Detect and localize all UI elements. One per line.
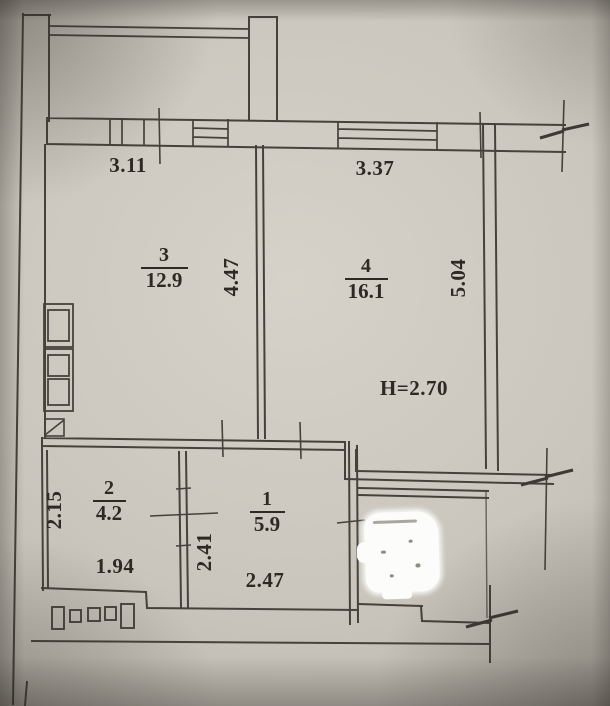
dim-room4-width: 3.37	[345, 157, 405, 179]
blob-mark	[390, 574, 394, 577]
bathroom-right-wall	[486, 492, 487, 618]
room3-label: 3 12.9	[132, 245, 196, 291]
balcony-railing-icon	[49, 26, 249, 38]
wardrobe-icon	[52, 604, 134, 629]
dim-room3-depth: 4.47	[220, 245, 242, 309]
floorplan-drawing	[0, 0, 610, 706]
blob-mark	[373, 519, 417, 524]
vent-icon	[45, 419, 64, 436]
censored-area-blob	[382, 585, 412, 599]
blob-mark	[409, 540, 413, 543]
room4-area: 16.1	[334, 281, 398, 302]
room3-number: 3	[132, 245, 196, 265]
blob-mark	[415, 563, 420, 567]
room1-number: 1	[235, 489, 299, 509]
dim-room4-depth: 5.04	[447, 246, 469, 310]
room4-number: 4	[334, 256, 398, 276]
censored-area-blob	[357, 542, 372, 563]
blob-mark	[381, 551, 386, 554]
censored-area-blob	[364, 511, 441, 594]
dim-hallway-width: 2.47	[235, 569, 295, 591]
room2-area: 4.2	[77, 503, 141, 524]
balcony-door-block-icon	[44, 304, 73, 411]
room1-area: 5.9	[235, 514, 299, 535]
wall-lines	[13, 14, 565, 705]
dim-room3-width: 3.11	[98, 154, 158, 176]
room4-label: 4 16.1	[334, 256, 398, 302]
dim-hallway-depth: 2.41	[193, 520, 215, 584]
room2-label: 2 4.2	[77, 478, 141, 524]
dim-room2-depth: 2.15	[43, 478, 65, 542]
ceiling-height-label: H=2.70	[372, 377, 456, 399]
room2-number: 2	[77, 478, 141, 498]
room3-area: 12.9	[132, 270, 196, 291]
floorplan-scan: 3.11 3.37 4.47 5.04 H=2.70 2.15 1.94 2.4…	[0, 0, 610, 706]
dim-room2-width: 1.94	[85, 555, 145, 577]
room1-label: 1 5.9	[235, 489, 299, 535]
